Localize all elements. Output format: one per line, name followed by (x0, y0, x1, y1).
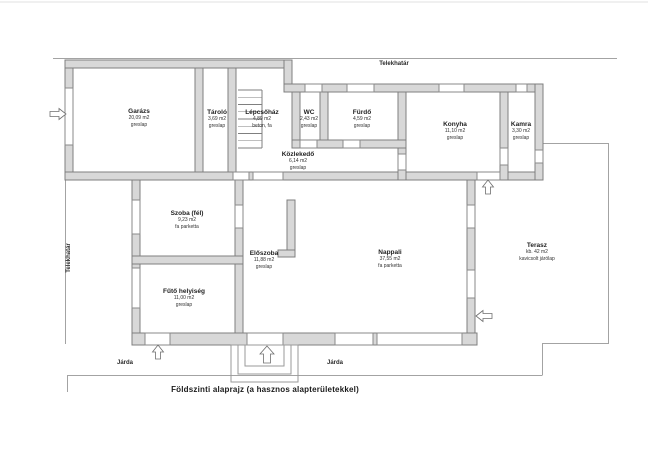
floor-plan-drawing (0, 0, 648, 450)
garage-door-arrow-icon (50, 109, 66, 120)
door-arrows (50, 109, 494, 364)
sidewalk-label-left: Járda (117, 360, 133, 366)
terrace-door-arrow-icon (476, 311, 492, 322)
heating-room-door-arrow-icon (153, 345, 164, 359)
floor-plan-page: Telekhatár Telekhatár Járda Járda Garázs… (0, 0, 648, 450)
kitchen-back-door-arrow-icon (483, 180, 494, 194)
property-boundary-label-left: Telekhatár (66, 243, 72, 273)
sidewalk-label-right: Járda (327, 360, 343, 366)
property-boundary-label-top: Telekhatár (379, 61, 409, 67)
plan-title: Földszinti alaprajz (a hasznos alapterül… (171, 385, 359, 394)
main-entrance-arrow-icon (260, 346, 274, 363)
staircase-icon (238, 90, 262, 148)
